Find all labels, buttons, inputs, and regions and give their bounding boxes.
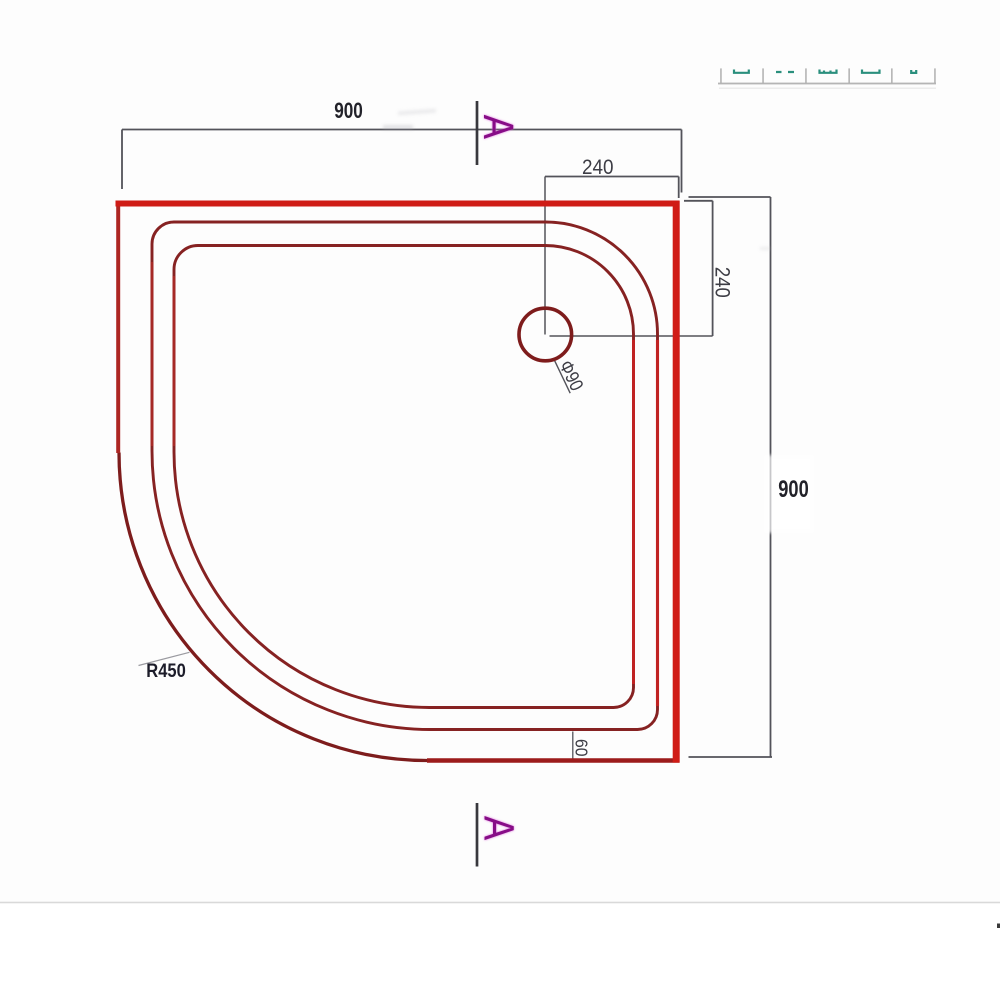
svg-text:A: A bbox=[474, 115, 521, 140]
svg-text:900: 900 bbox=[778, 475, 808, 502]
svg-text:240: 240 bbox=[582, 156, 614, 179]
svg-text:60: 60 bbox=[571, 739, 591, 757]
svg-text:240: 240 bbox=[710, 267, 733, 298]
svg-text:A: A bbox=[475, 816, 522, 841]
svg-text:R450: R450 bbox=[146, 660, 186, 681]
svg-text:900: 900 bbox=[334, 99, 363, 124]
